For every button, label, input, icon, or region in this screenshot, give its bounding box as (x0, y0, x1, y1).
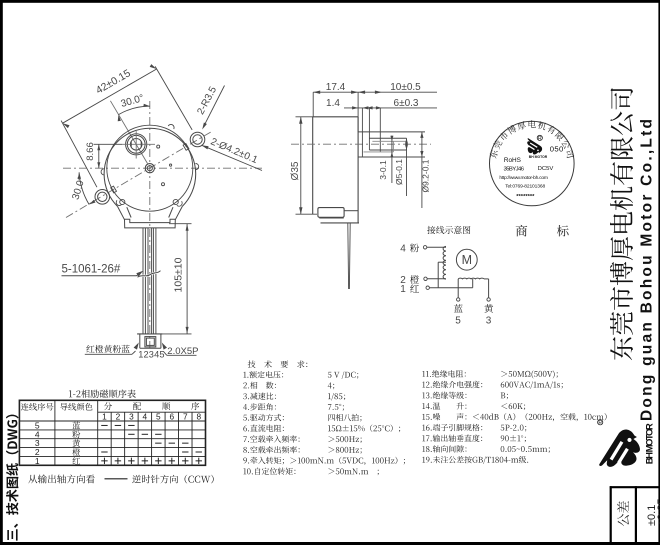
svg-text:6: 6 (169, 412, 174, 422)
svg-text:17.4: 17.4 (326, 82, 346, 93)
svg-text:35BYJ46: 35BYJ46 (504, 166, 525, 172)
svg-text:Ø9.2-0.1: Ø9.2-0.1 (420, 159, 430, 192)
svg-text:10±0.5: 10±0.5 (390, 82, 421, 93)
svg-text:5: 5 (455, 316, 461, 327)
svg-text:Ø35: Ø35 (290, 161, 301, 180)
svg-text:Dong guan Bohou Motor Co.,Ltd: Dong guan Bohou Motor Co.,Ltd (639, 119, 656, 421)
svg-text:1.4: 1.4 (326, 98, 340, 109)
svg-text:050: 050 (550, 145, 564, 154)
svg-text:DC5V: DC5V (538, 166, 554, 172)
svg-text:8: 8 (196, 412, 201, 422)
svg-text:R: R (538, 136, 542, 142)
svg-text:1: 1 (35, 456, 40, 466)
svg-text:4: 4 (400, 243, 406, 254)
svg-text:3: 3 (129, 412, 134, 422)
svg-text:http://www.motor-bh.com: http://www.motor-bh.com (499, 175, 548, 181)
svg-text:±0.25: ±0.25 (656, 499, 660, 526)
svg-text:BH MOTOR: BH MOTOR (645, 423, 656, 464)
svg-text:105±10: 105±10 (173, 257, 185, 292)
svg-text:2: 2 (116, 412, 121, 422)
svg-text:********: ******** (516, 194, 535, 200)
svg-text:3-0.1: 3-0.1 (378, 160, 388, 180)
svg-text:7: 7 (183, 412, 188, 422)
svg-text:M: M (462, 253, 472, 267)
svg-text:BH MOTOR: BH MOTOR (529, 155, 548, 159)
svg-text:1: 1 (102, 412, 107, 422)
svg-text:R: R (598, 421, 602, 427)
svg-text:6±0.3: 6±0.3 (394, 98, 419, 109)
svg-text:3: 3 (486, 316, 492, 327)
svg-text:Ø5-0.1: Ø5-0.1 (394, 159, 404, 185)
svg-text:1: 1 (400, 284, 406, 295)
svg-text:5: 5 (156, 412, 161, 422)
svg-text:8.66: 8.66 (85, 142, 96, 161)
svg-text:Tel:0769-82101368: Tel:0769-82101368 (505, 184, 545, 190)
svg-text:12345: 12345 (138, 350, 165, 360)
svg-text:5-1061-26#: 5-1061-26# (62, 264, 121, 276)
svg-text:4: 4 (143, 412, 148, 422)
svg-text:RoHS: RoHS (504, 157, 521, 164)
